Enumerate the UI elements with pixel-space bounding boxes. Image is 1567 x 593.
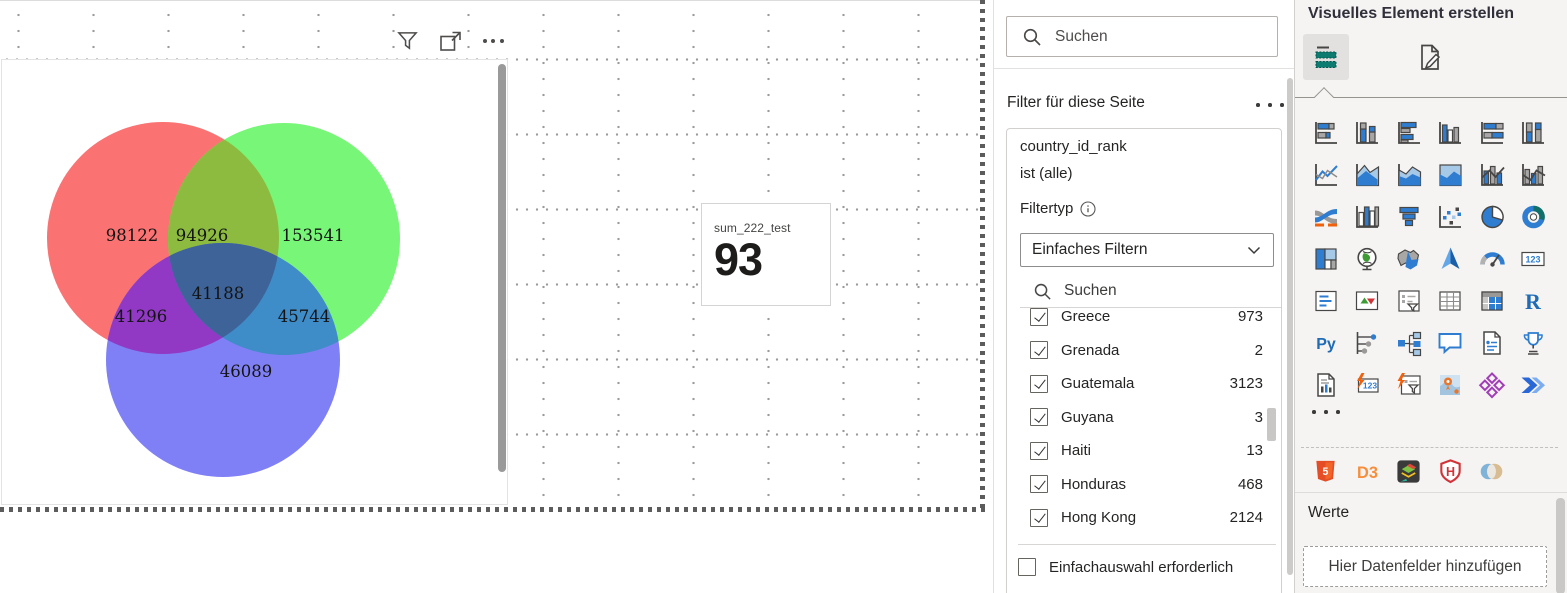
filter-type-label: Filtertyp [1020, 200, 1073, 217]
line-clustered-column-chart-icon[interactable] [1518, 160, 1548, 190]
filter-value-count: 13 [1246, 442, 1263, 459]
smart-narrative-icon[interactable] [1477, 328, 1507, 358]
page-boundary-bottom [0, 507, 986, 512]
waterfall-chart-icon[interactable] [1352, 202, 1382, 232]
stacked-column-100-chart-icon[interactable] [1518, 118, 1548, 148]
filter-section-title: Filter für diese Seite [1007, 94, 1145, 112]
checkbox-checked[interactable] [1030, 442, 1048, 460]
filter-value-row-guyana[interactable]: Guyana 3 [1007, 401, 1282, 435]
search-icon [1022, 27, 1042, 47]
filter-field-name: country_id_rank [1020, 138, 1127, 155]
filter-value-label: Haiti [1061, 442, 1246, 459]
filter-type-selected-value: Einfaches Filtern [1032, 241, 1247, 259]
report-canvas: 98122 94926 153541 41188 41296 45744 460… [0, 0, 993, 593]
tab-format-visual[interactable] [1407, 34, 1453, 80]
q-and-a-icon[interactable] [1435, 328, 1465, 358]
scatter-chart-icon[interactable] [1435, 202, 1465, 232]
card-new-icon[interactable]: 123 [1352, 370, 1382, 400]
arcgis-map-icon[interactable] [1435, 370, 1465, 400]
stacked-bar-100-chart-icon[interactable] [1477, 118, 1507, 148]
table-icon[interactable] [1435, 286, 1465, 316]
power-automate-icon[interactable] [1518, 370, 1548, 400]
more-options-icon[interactable] [480, 28, 506, 54]
checkbox-checked[interactable] [1030, 308, 1048, 326]
venn-label-red-only: 98122 [106, 226, 159, 245]
filter-value-row-greece[interactable]: Greece 973 [1007, 308, 1282, 334]
field-well-placeholder: Hier Datenfelder hinzufügen [1328, 558, 1521, 576]
filter-value-label: Hong Kong [1061, 509, 1230, 526]
filter-value-row-guatemala[interactable]: Guatemala 3123 [1007, 367, 1282, 401]
venn-label-green-blue: 45744 [278, 307, 331, 326]
map-layers-visual-icon[interactable] [1394, 456, 1424, 486]
line-chart-icon[interactable] [1311, 160, 1341, 190]
filter-icon[interactable] [394, 28, 420, 54]
funnel-chart-icon[interactable] [1394, 202, 1424, 232]
filter-values-search-placeholder: Suchen [1064, 282, 1117, 300]
card-visual[interactable]: sum_222_test 93 [701, 203, 831, 306]
venn-label-green-only: 153541 [282, 226, 345, 245]
visual-scrollbar[interactable] [498, 64, 506, 472]
divider-dashed [1301, 447, 1558, 448]
filter-value-label: Guatemala [1061, 375, 1230, 392]
tab-build-visual[interactable] [1303, 34, 1349, 80]
filter-condition: ist (alle) [1020, 165, 1073, 182]
custom-visual-diamond-icon[interactable] [1477, 370, 1507, 400]
checkbox-checked[interactable] [1030, 375, 1048, 393]
map-icon[interactable] [1352, 244, 1382, 274]
filter-list-scrollbar[interactable] [1267, 408, 1276, 441]
divider [1295, 492, 1567, 493]
filter-value-row-honduras[interactable]: Honduras 468 [1007, 468, 1282, 502]
stacked-area-100-chart-icon[interactable] [1435, 160, 1465, 190]
build-visual-icon [1311, 42, 1341, 72]
filter-pane: Filter für diese Seite country_id_rank i… [993, 0, 1294, 593]
filter-value-label: Greece [1061, 308, 1238, 325]
python-visual-icon[interactable]: Py [1311, 328, 1341, 358]
r-script-icon[interactable]: R [1518, 286, 1548, 316]
venn-diagram: 98122 94926 153541 41188 41296 45744 460… [2, 60, 509, 506]
filter-section-more-options-icon[interactable] [1256, 103, 1288, 107]
svg-text:123: 123 [1526, 255, 1541, 265]
values-field-well[interactable]: Hier Datenfelder hinzufügen [1303, 546, 1547, 587]
slicer-new-icon[interactable] [1394, 370, 1424, 400]
pie-chart-icon[interactable] [1477, 202, 1507, 232]
checkbox-checked[interactable] [1030, 509, 1048, 527]
card-label: sum_222_test [714, 221, 818, 235]
kpi-icon[interactable] [1352, 286, 1382, 316]
require-single-select-label: Einfachauswahl erforderlich [1049, 559, 1233, 576]
checkbox-checked[interactable] [1030, 475, 1048, 493]
info-icon[interactable] [1080, 201, 1096, 217]
checkbox-unchecked[interactable] [1018, 558, 1036, 576]
chevron-down-icon [1247, 246, 1261, 255]
format-visual-icon [1415, 42, 1445, 72]
filter-values-list: Greece 973 Grenada 2 Guatemala 3123 Guya… [1007, 308, 1282, 544]
matrix-icon[interactable] [1477, 286, 1507, 316]
venn-label-red-blue: 41296 [115, 307, 168, 326]
filter-pane-search-box[interactable] [1006, 16, 1278, 57]
ribbon-chart-icon[interactable] [1311, 202, 1341, 232]
filter-value-count: 3 [1255, 409, 1263, 426]
metrics-icon[interactable] [1518, 328, 1548, 358]
donut-chart-icon[interactable] [1518, 202, 1548, 232]
focus-mode-icon[interactable] [437, 28, 463, 54]
filter-value-count: 2 [1255, 342, 1263, 359]
powerbi-workspace: 98122 94926 153541 41188 41296 45744 460… [0, 0, 1567, 593]
card-value: 93 [714, 236, 818, 283]
treemap-icon[interactable] [1311, 244, 1341, 274]
filter-value-label: Grenada [1061, 342, 1255, 359]
multi-row-card-icon[interactable] [1311, 286, 1341, 316]
custom-visuals-gallery: 5D3H [1305, 454, 1513, 488]
key-influencers-icon[interactable] [1352, 328, 1382, 358]
filled-map-icon[interactable] [1394, 244, 1424, 274]
selected-tab-caret [1314, 87, 1334, 107]
search-icon [1033, 282, 1052, 301]
divider [1018, 544, 1276, 545]
filter-value-label: Guyana [1061, 409, 1255, 426]
tab-divider [1295, 97, 1567, 98]
values-section-title: Werte [1308, 504, 1349, 522]
checkbox-checked[interactable] [1030, 341, 1048, 359]
visual-hover-toolbar [394, 28, 506, 54]
pane-divider [994, 68, 1294, 69]
filter-value-count: 3123 [1230, 375, 1263, 392]
html5-visual-icon[interactable]: 5 [1311, 456, 1341, 486]
azure-map-icon[interactable] [1435, 244, 1465, 274]
overlap-circles-visual-icon[interactable] [1477, 456, 1507, 486]
venn-label-red-green: 94926 [176, 226, 229, 245]
filter-value-row-haiti[interactable]: Haiti 13 [1007, 434, 1282, 468]
filter-value-count: 2124 [1230, 509, 1263, 526]
filter-value-count: 973 [1238, 308, 1263, 325]
h-shield-visual-icon[interactable]: H [1435, 456, 1465, 486]
clustered-column-chart-icon[interactable] [1435, 118, 1465, 148]
filter-card-country-id-rank[interactable]: country_id_rank ist (alle) Filtertyp Ein… [1006, 128, 1282, 593]
filter-values-search[interactable]: Suchen [1020, 276, 1117, 306]
viz-pane-title: Visuelles Element erstellen [1308, 5, 1514, 23]
visualizations-pane: Visuelles Element erstellen 123RPy123 5D… [1294, 0, 1567, 593]
clustered-bar-chart-icon[interactable] [1394, 118, 1424, 148]
checkbox-checked[interactable] [1030, 408, 1048, 426]
paginated-report-icon[interactable] [1311, 370, 1341, 400]
page-boundary-right [980, 0, 985, 511]
svg-text:123: 123 [1363, 381, 1377, 391]
venn-label-blue-only: 46089 [220, 362, 273, 381]
svg-text:H: H [1446, 464, 1455, 478]
stacked-column-chart-icon[interactable] [1352, 118, 1382, 148]
gauge-icon[interactable] [1477, 244, 1507, 274]
filter-type-dropdown[interactable]: Einfaches Filtern [1020, 233, 1274, 267]
stacked-area-chart-icon[interactable] [1394, 160, 1424, 190]
filter-value-count: 468 [1238, 476, 1263, 493]
svg-text:D3: D3 [1357, 463, 1378, 481]
line-stacked-column-chart-icon[interactable] [1477, 160, 1507, 190]
d3-visual-icon[interactable]: D3 [1352, 456, 1382, 486]
filter-value-label: Honduras [1061, 476, 1238, 493]
svg-text:R: R [1525, 289, 1542, 314]
get-more-visuals-icon[interactable] [1312, 410, 1344, 414]
visual-gallery: 123RPy123 [1305, 112, 1554, 406]
area-chart-icon[interactable] [1352, 160, 1382, 190]
filter-pane-scrollbar[interactable] [1287, 78, 1293, 575]
venn-diagram-visual[interactable]: 98122 94926 153541 41188 41296 45744 460… [1, 59, 508, 505]
filter-value-row-grenada[interactable]: Grenada 2 [1007, 334, 1282, 368]
stacked-bar-chart-icon[interactable] [1311, 118, 1341, 148]
card-icon[interactable]: 123 [1518, 244, 1548, 274]
slicer-icon[interactable] [1394, 286, 1424, 316]
svg-text:Py: Py [1316, 336, 1336, 353]
decomposition-tree-icon[interactable] [1394, 328, 1424, 358]
search-input[interactable] [1055, 28, 1277, 46]
filter-value-row-hong-kong[interactable]: Hong Kong 2124 [1007, 501, 1282, 535]
venn-label-center: 41188 [192, 284, 245, 303]
viz-pane-scrollbar[interactable] [1556, 498, 1565, 593]
svg-text:5: 5 [1323, 465, 1329, 477]
